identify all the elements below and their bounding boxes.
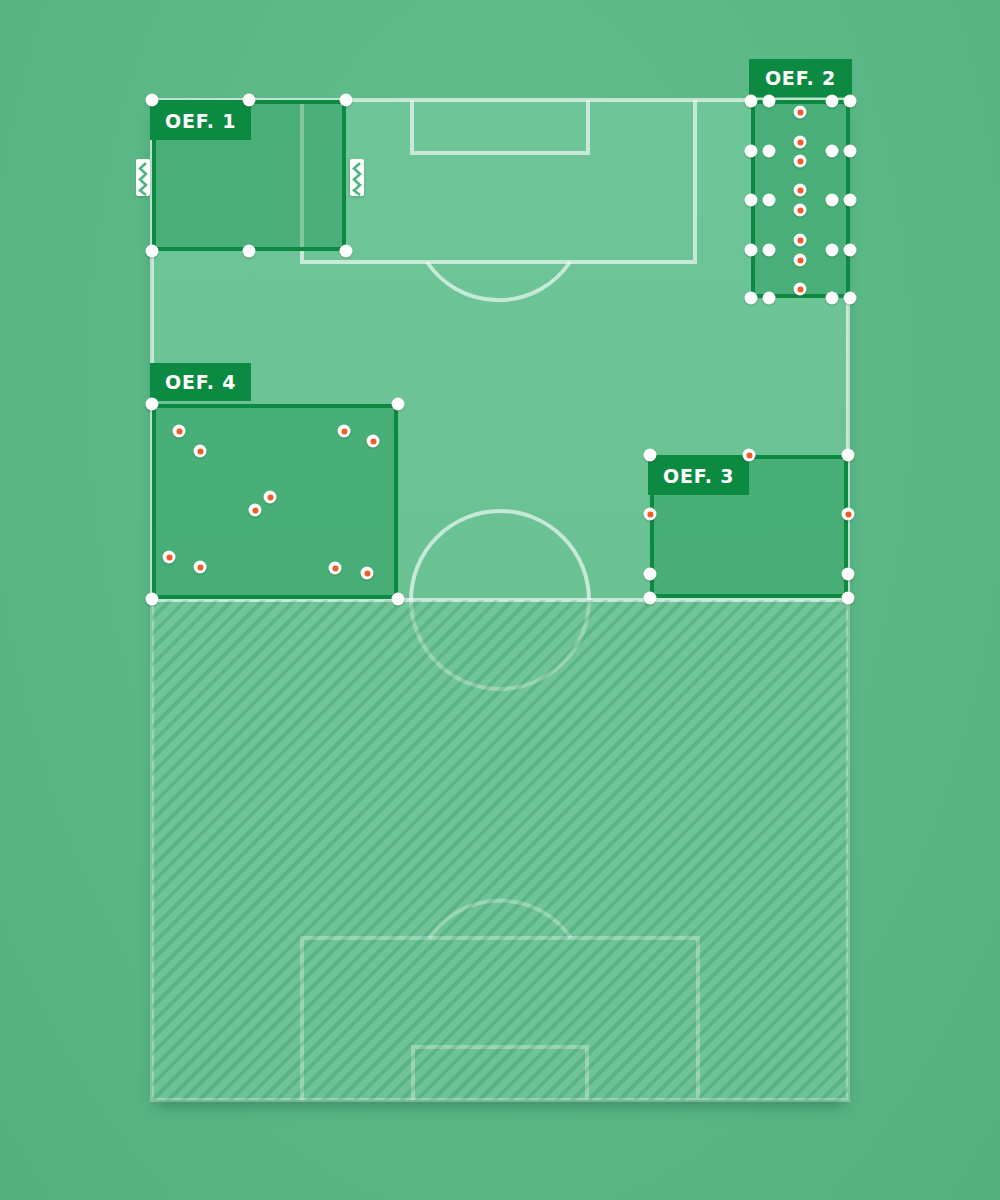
player-marker[interactable] xyxy=(826,292,839,305)
cone-tip xyxy=(797,207,803,213)
dots-layer xyxy=(0,0,1000,1200)
player-marker[interactable] xyxy=(826,95,839,108)
pitch-canvas: OEF. 1OEF. 2OEF. 3OEF. 4 xyxy=(0,0,1000,1200)
cone-tip xyxy=(370,438,376,444)
resize-handle[interactable] xyxy=(842,449,855,462)
cone-tip xyxy=(197,564,203,570)
cone-marker[interactable] xyxy=(264,491,277,504)
resize-handle[interactable] xyxy=(146,398,159,411)
player-marker[interactable] xyxy=(745,194,758,207)
player-marker[interactable] xyxy=(826,244,839,257)
cone-tip xyxy=(797,109,803,115)
cone-marker[interactable] xyxy=(361,567,374,580)
cone-tip xyxy=(252,507,258,513)
cone-tip xyxy=(341,428,347,434)
cone-tip xyxy=(364,570,370,576)
cone-tip xyxy=(797,237,803,243)
cone-tip xyxy=(797,286,803,292)
cone-marker[interactable] xyxy=(842,508,855,521)
player-marker[interactable] xyxy=(826,145,839,158)
resize-handle[interactable] xyxy=(745,95,758,108)
resize-handle[interactable] xyxy=(243,94,256,107)
resize-handle[interactable] xyxy=(392,398,405,411)
player-marker[interactable] xyxy=(763,145,776,158)
cone-marker[interactable] xyxy=(794,204,807,217)
cone-tip xyxy=(797,187,803,193)
cone-marker[interactable] xyxy=(794,234,807,247)
player-marker[interactable] xyxy=(826,194,839,207)
cone-tip xyxy=(176,428,182,434)
cone-marker[interactable] xyxy=(173,425,186,438)
cone-marker[interactable] xyxy=(794,155,807,168)
player-marker[interactable] xyxy=(763,95,776,108)
player-marker[interactable] xyxy=(745,244,758,257)
player-marker[interactable] xyxy=(844,194,857,207)
cone-marker[interactable] xyxy=(794,184,807,197)
resize-handle[interactable] xyxy=(146,593,159,606)
resize-handle[interactable] xyxy=(745,292,758,305)
player-marker[interactable] xyxy=(644,568,657,581)
cone-tip xyxy=(845,511,851,517)
player-marker[interactable] xyxy=(842,568,855,581)
resize-handle[interactable] xyxy=(844,292,857,305)
cone-tip xyxy=(197,448,203,454)
cone-marker[interactable] xyxy=(794,106,807,119)
cone-marker[interactable] xyxy=(794,136,807,149)
player-marker[interactable] xyxy=(844,244,857,257)
resize-handle[interactable] xyxy=(644,592,657,605)
cone-tip xyxy=(797,158,803,164)
player-marker[interactable] xyxy=(844,145,857,158)
player-marker[interactable] xyxy=(763,292,776,305)
resize-handle[interactable] xyxy=(844,95,857,108)
cone-marker[interactable] xyxy=(743,449,756,462)
cone-marker[interactable] xyxy=(338,425,351,438)
cone-marker[interactable] xyxy=(163,551,176,564)
resize-handle[interactable] xyxy=(340,245,353,258)
resize-handle[interactable] xyxy=(392,593,405,606)
player-marker[interactable] xyxy=(763,244,776,257)
cone-tip xyxy=(166,554,172,560)
cone-marker[interactable] xyxy=(249,504,262,517)
resize-handle[interactable] xyxy=(146,94,159,107)
cone-marker[interactable] xyxy=(367,435,380,448)
cone-marker[interactable] xyxy=(194,561,207,574)
resize-handle[interactable] xyxy=(146,245,159,258)
resize-handle[interactable] xyxy=(340,94,353,107)
cone-tip xyxy=(797,257,803,263)
cone-tip xyxy=(332,565,338,571)
player-marker[interactable] xyxy=(763,194,776,207)
cone-tip xyxy=(797,139,803,145)
resize-handle[interactable] xyxy=(644,449,657,462)
cone-marker[interactable] xyxy=(794,254,807,267)
cone-tip xyxy=(647,511,653,517)
cone-tip xyxy=(746,452,752,458)
cone-marker[interactable] xyxy=(329,562,342,575)
cone-marker[interactable] xyxy=(794,283,807,296)
cone-marker[interactable] xyxy=(644,508,657,521)
player-marker[interactable] xyxy=(745,145,758,158)
resize-handle[interactable] xyxy=(243,245,256,258)
cone-tip xyxy=(267,494,273,500)
resize-handle[interactable] xyxy=(842,592,855,605)
cone-marker[interactable] xyxy=(194,445,207,458)
